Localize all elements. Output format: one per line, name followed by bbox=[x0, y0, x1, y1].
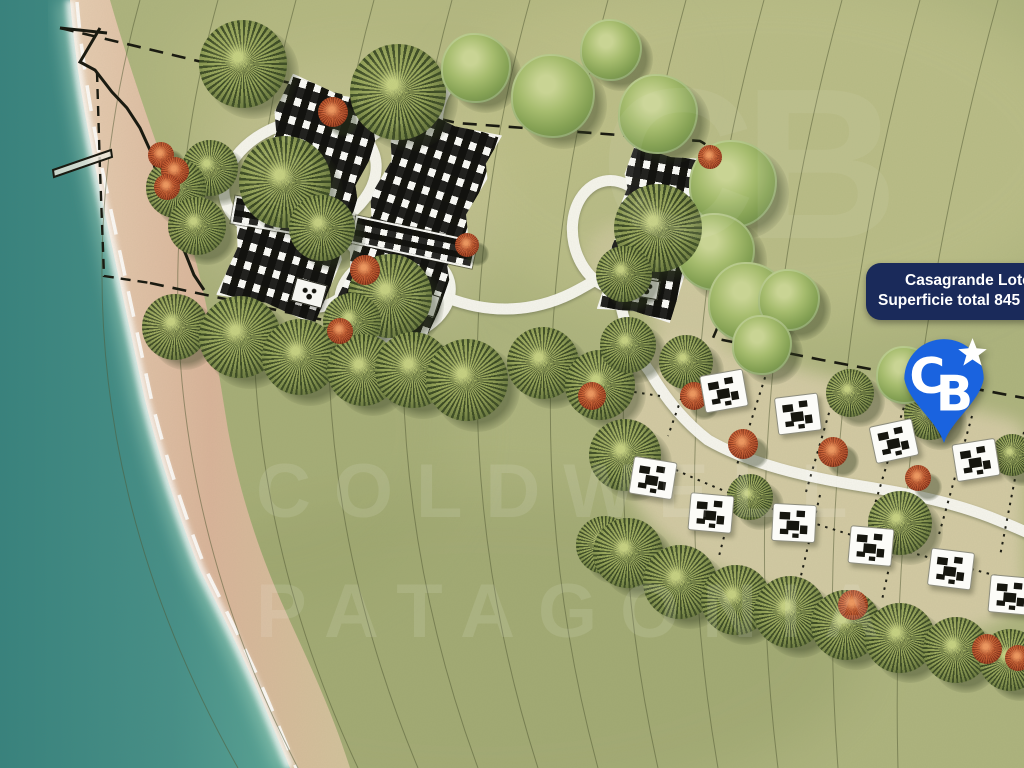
pin-letter-b: B bbox=[936, 365, 973, 422]
lot-cabin bbox=[699, 368, 749, 413]
info-label-title: Casagrande Lote bbox=[905, 271, 1024, 291]
coldwell-banker-pin: C B bbox=[893, 333, 995, 445]
cabin-plan-glyph bbox=[952, 439, 999, 481]
cabin-plan-glyph bbox=[700, 370, 748, 413]
cabin-plan-glyph bbox=[629, 457, 676, 499]
lot-cabin bbox=[687, 492, 734, 534]
lot-cabin bbox=[628, 456, 677, 500]
site-plan-scene: CB COLDWELL PATAGONIA Casagrande Lote Su… bbox=[0, 0, 1024, 768]
lot-cabin bbox=[774, 392, 822, 435]
cabin-plan-glyph bbox=[772, 504, 816, 542]
cabin-plan-glyph bbox=[989, 575, 1024, 615]
cabin-plan-glyph bbox=[849, 526, 894, 566]
lot-cabin bbox=[847, 525, 894, 567]
cabin-plan-glyph bbox=[689, 493, 734, 533]
cabins-layer bbox=[0, 0, 1024, 768]
info-label: Casagrande Lote Superficie total 845 bbox=[866, 263, 1024, 320]
lot-cabin bbox=[771, 503, 817, 543]
lot-cabin bbox=[927, 547, 975, 590]
info-label-surface: Superficie total 845 bbox=[878, 291, 1024, 311]
cabin-plan-glyph bbox=[928, 549, 974, 590]
lot-cabin bbox=[987, 574, 1024, 616]
cabin-plan-glyph bbox=[775, 394, 821, 435]
